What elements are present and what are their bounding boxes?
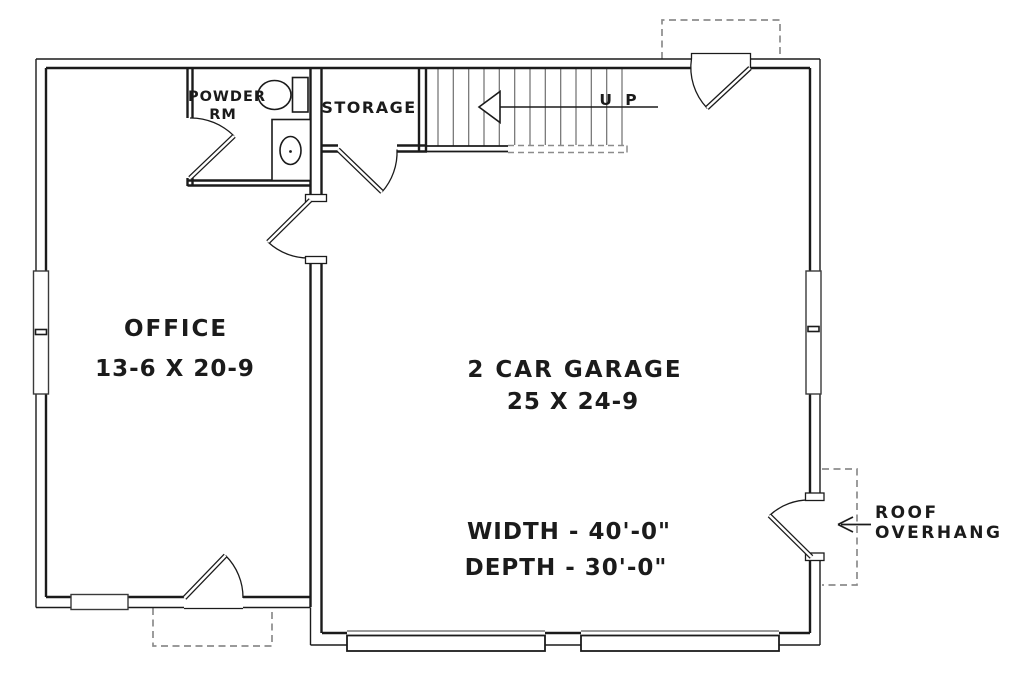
powder-room-label-line1: POWDER — [188, 89, 266, 105]
overall-depth-note: DEPTH - 30'-0" — [465, 555, 668, 581]
roof-overhang-label-line1: ROOF — [875, 503, 939, 523]
garage-label: 2 CAR GARAGE — [467, 357, 682, 383]
powder-room-label-line2: RM — [209, 107, 237, 123]
storage-label: STORAGE — [321, 98, 416, 117]
sink-drain-icon — [289, 150, 292, 153]
floor-plan-page: U P — [0, 0, 1024, 692]
garage-door-left — [347, 636, 545, 652]
office-left-window — [34, 271, 49, 394]
roof-overhang-label-line2: OVERHANG — [875, 523, 1002, 543]
office-label: OFFICE — [124, 316, 228, 342]
plan-background — [0, 0, 1024, 692]
floor-plan-drawing: U P — [0, 0, 1024, 692]
stairs-up-label: U P — [599, 91, 640, 109]
overall-width-note: WIDTH - 40'-0" — [467, 519, 671, 545]
office-dimensions: 13-6 X 20-9 — [95, 356, 255, 382]
garage-right-window — [806, 271, 821, 394]
toilet-tank-icon — [293, 78, 309, 113]
garage-door-right — [581, 636, 779, 652]
office-front-window — [71, 595, 128, 610]
garage-dimensions: 25 X 24-9 — [507, 389, 639, 415]
